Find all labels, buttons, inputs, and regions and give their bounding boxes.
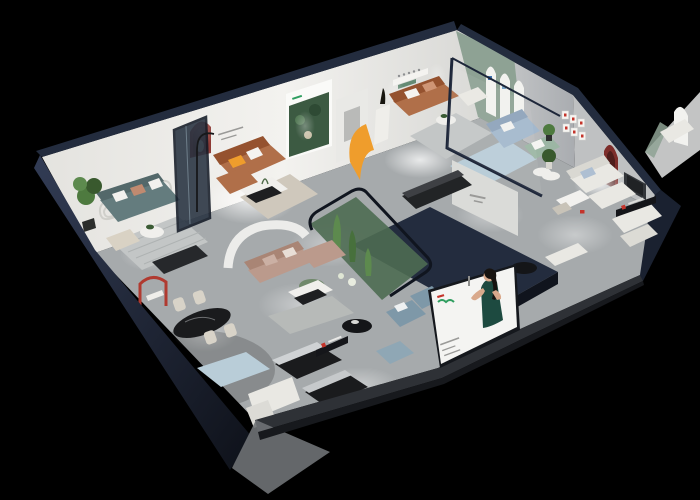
small-red-logo — [580, 210, 585, 214]
showroom-render — [0, 0, 700, 500]
table-plant — [146, 225, 154, 230]
render-canvas — [0, 0, 700, 500]
pedestal-column — [374, 104, 390, 145]
table-decor — [351, 320, 359, 324]
round-table — [542, 172, 560, 181]
table-plant — [441, 114, 448, 118]
vertical-text-mark — [468, 276, 470, 286]
